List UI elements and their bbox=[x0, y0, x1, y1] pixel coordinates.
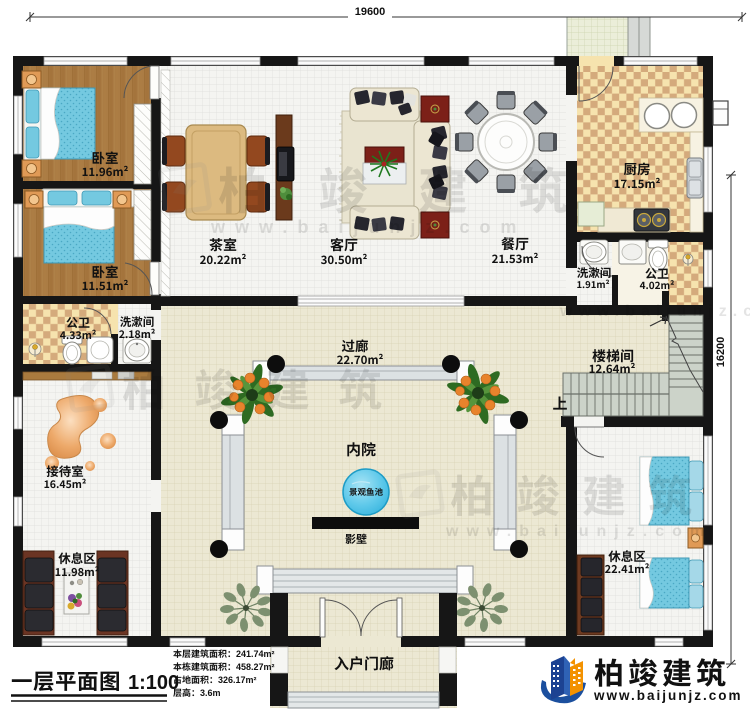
svg-text:21.53m²: 21.53m² bbox=[492, 251, 539, 267]
svg-text:17.15m²: 17.15m² bbox=[614, 176, 661, 192]
svg-text:本栋建筑面积：458.27m²: 本栋建筑面积：458.27m² bbox=[173, 660, 275, 673]
svg-text:2.18m²: 2.18m² bbox=[119, 327, 156, 342]
svg-text:11.96m²: 11.96m² bbox=[82, 164, 129, 180]
svg-text:上: 上 bbox=[552, 393, 567, 414]
svg-text:柏竣建筑: 柏竣建筑 bbox=[594, 649, 730, 693]
svg-text:影壁: 影壁 bbox=[345, 531, 367, 547]
svg-text:1:100: 1:100 bbox=[128, 672, 179, 694]
svg-text:1.91m²: 1.91m² bbox=[576, 277, 609, 291]
svg-text:柏竣建筑: 柏竣建筑 bbox=[122, 355, 410, 419]
svg-text:本层建筑面积：241.74m²: 本层建筑面积：241.74m² bbox=[173, 647, 275, 660]
svg-text:www.baijunjz.com: www.baijunjz.com bbox=[559, 303, 750, 320]
svg-text:30.50m²: 30.50m² bbox=[321, 252, 368, 268]
svg-text:层高：3.6m: 层高：3.6m bbox=[173, 686, 221, 699]
svg-text:柏竣建筑: 柏竣建筑 bbox=[450, 461, 714, 525]
svg-text:16200: 16200 bbox=[715, 337, 727, 368]
svg-text:22.41m²: 22.41m² bbox=[605, 561, 650, 577]
svg-text:www.baijunjz.com: www.baijunjz.com bbox=[210, 217, 526, 237]
svg-text:厨房: 厨房 bbox=[624, 158, 651, 178]
svg-text:4.02m²: 4.02m² bbox=[640, 277, 675, 292]
svg-text:入户门廊: 入户门廊 bbox=[334, 653, 394, 674]
svg-text:www.baijunjz.com: www.baijunjz.com bbox=[593, 688, 743, 703]
svg-text:一层平面图: 一层平面图 bbox=[11, 665, 121, 696]
svg-text:11.51m²: 11.51m² bbox=[82, 278, 129, 294]
svg-text:11.98m²: 11.98m² bbox=[55, 564, 100, 580]
svg-text:19600: 19600 bbox=[355, 6, 386, 18]
svg-text:景观鱼池: 景观鱼池 bbox=[349, 486, 384, 498]
svg-text:16.45m²: 16.45m² bbox=[44, 477, 87, 492]
svg-text:占地面积：326.17m²: 占地面积：326.17m² bbox=[173, 673, 257, 686]
svg-text:20.22m²: 20.22m² bbox=[200, 252, 247, 268]
svg-text:12.64m²: 12.64m² bbox=[589, 361, 636, 377]
svg-text:柏竣建筑: 柏竣建筑 bbox=[218, 152, 618, 224]
svg-text:内院: 内院 bbox=[346, 439, 376, 460]
svg-text:www.baijunjz.com: www.baijunjz.com bbox=[445, 523, 712, 540]
svg-text:4.33m²: 4.33m² bbox=[60, 328, 97, 343]
